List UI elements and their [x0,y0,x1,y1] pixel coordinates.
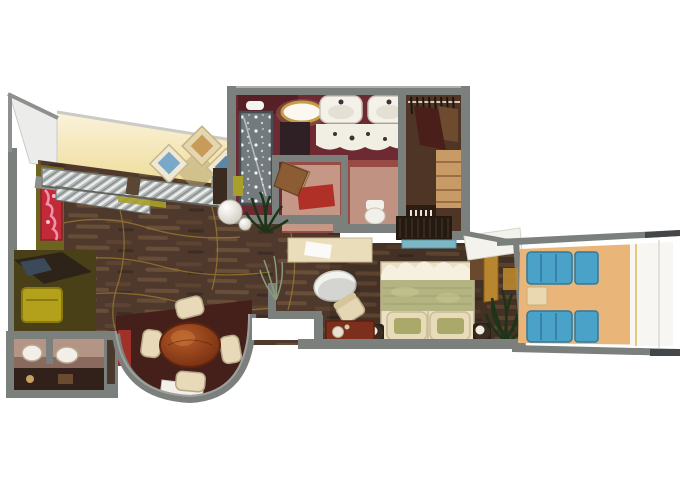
closet-shelves [436,150,461,208]
balcony-side-table [527,287,547,305]
mirror-panel [280,122,310,158]
guest-sink-2 [56,347,78,363]
suite-floorplan [0,0,680,486]
towel-accent [233,176,243,196]
floorplan-canvas [0,0,680,486]
lounger-top [527,252,598,284]
yellow-chair [22,288,62,322]
wall-sconce [246,101,264,110]
desk-nook [14,250,96,335]
nightstand-lamp-right [473,323,491,341]
guest-sink-1 [22,345,42,361]
ball-floor-lamp [218,200,242,224]
bath-wall-right [461,86,470,240]
guest-bath-wall-bottom [6,390,112,398]
lounger-bottom [527,311,598,342]
sofa-side-table [125,176,140,196]
guest-bath-wall-top [6,331,112,339]
bed [381,262,474,347]
red-bath-mat [297,184,335,210]
bedroom-wall-bottom [298,339,524,349]
toilet [365,208,385,224]
threshold-gold [503,268,518,290]
oval-ceiling-light [282,102,322,122]
balcony [497,230,680,356]
blue-glass-top [402,240,456,248]
media-cabinet [396,216,456,248]
guest-bathroom [6,331,118,398]
